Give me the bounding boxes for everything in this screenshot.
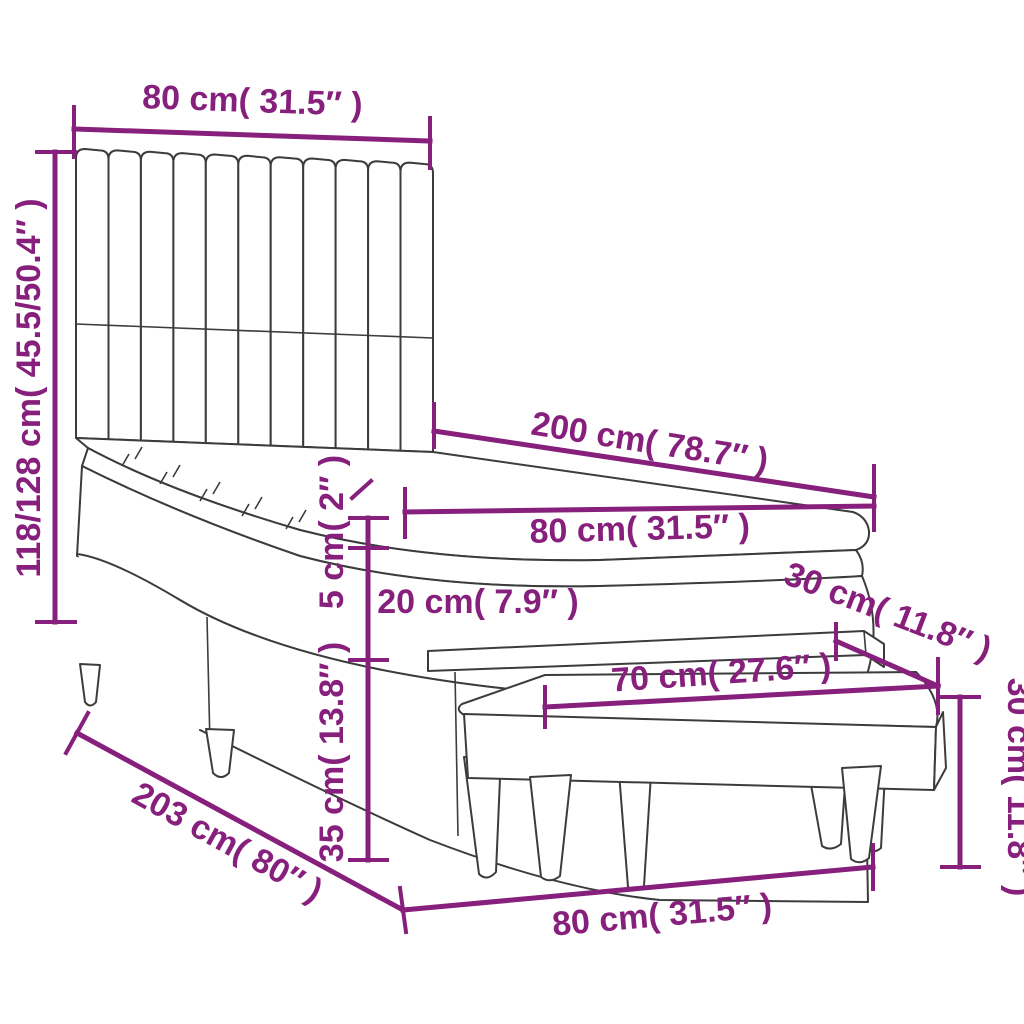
label-total-height: 118/128 cm( 45.5/50.4″ )	[10, 198, 48, 577]
label-base-length: 203 cm( 80″ )	[126, 775, 329, 911]
bed-drawing	[76, 149, 874, 902]
headboard-slat	[238, 156, 270, 446]
label-base-height: 35 cm( 13.8″ )	[313, 642, 351, 862]
headboard-slat	[271, 157, 304, 447]
dim-ticks-base-length	[66, 713, 88, 753]
label-headboard-width: 80 cm( 31.5″ )	[142, 78, 364, 124]
label-bench-height: 30 cm( 11.8″ )	[1000, 678, 1024, 897]
bed-dimension-diagram: 80 cm( 31.5″ ) 118/128 cm( 45.5/50.4″ ) …	[0, 0, 1024, 1024]
label-mattress-height: 20 cm( 7.9″ )	[377, 583, 579, 621]
headboard-slat	[401, 163, 434, 452]
headboard-slat	[206, 155, 239, 445]
label-bed-length: 200 cm( 78.7″ )	[529, 405, 771, 480]
bed-leg	[80, 664, 100, 706]
label-bed-width: 80 cm( 31.5″ )	[529, 507, 750, 551]
dim-line-headboard-width	[74, 129, 430, 141]
headboard-slat	[368, 161, 400, 450]
headboard-slat	[303, 159, 335, 449]
headboard-slats	[76, 149, 433, 452]
headboard-slat	[141, 152, 174, 442]
label-topper-height: 5 cm( 2″ )	[313, 455, 351, 609]
headboard-slat	[173, 153, 205, 443]
dimension-diagram-page: 80 cm( 31.5″ ) 118/128 cm( 45.5/50.4″ ) …	[0, 0, 1024, 1024]
headboard-slat	[336, 160, 369, 450]
headboard-slat	[109, 150, 141, 440]
bed-leg	[206, 729, 234, 777]
headboard-slat	[76, 149, 109, 439]
